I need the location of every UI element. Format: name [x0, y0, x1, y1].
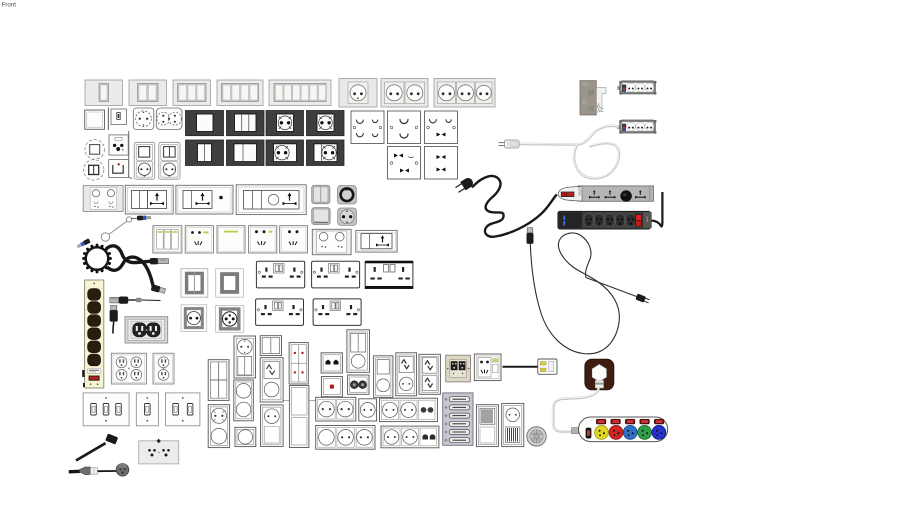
svg-text:Front: Front	[2, 2, 17, 9]
svg-text:SALUTE: SALUTE	[578, 185, 582, 195]
